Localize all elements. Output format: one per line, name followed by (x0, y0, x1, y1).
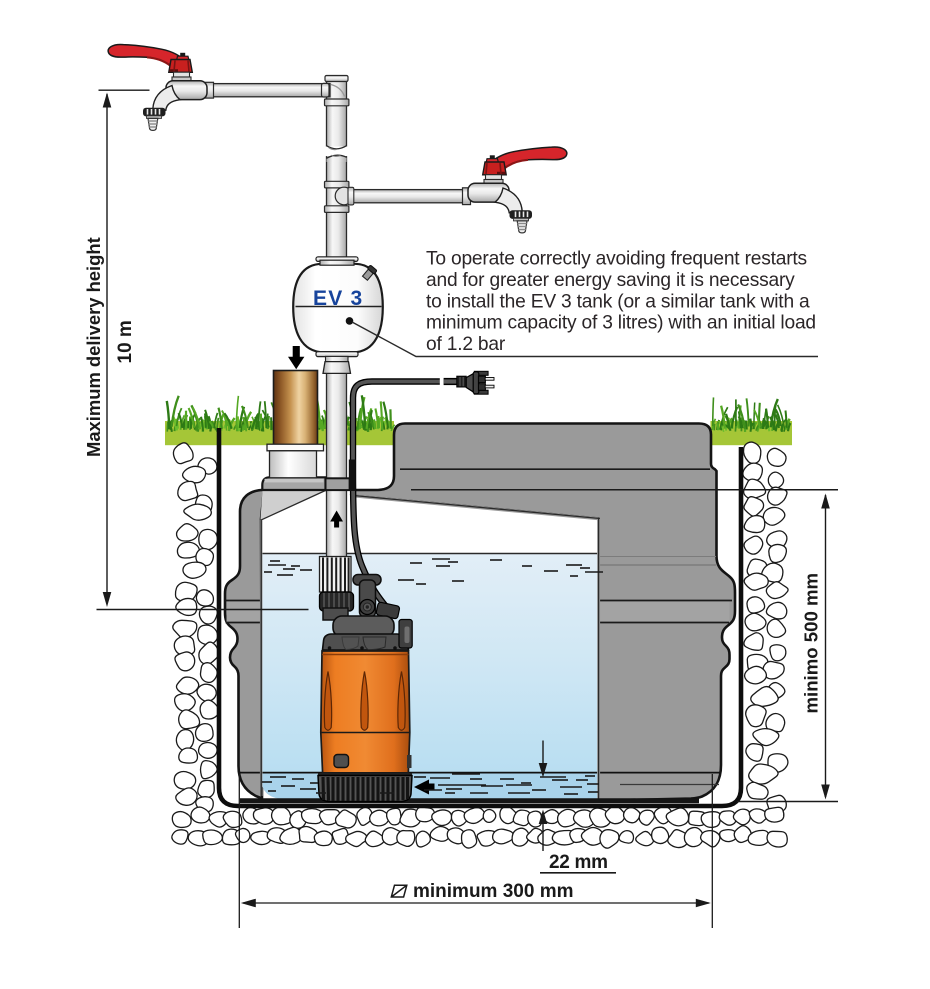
svg-text:minimum capacity of 3 litres): minimum capacity of 3 litres) with an in… (426, 313, 816, 334)
svg-text:To operate correctly avoiding: To operate correctly avoiding frequent r… (426, 249, 807, 270)
svg-text:10 m: 10 m (115, 320, 136, 363)
svg-text:Maximum delivery height: Maximum delivery height (83, 237, 104, 457)
svg-text:to install the EV 3 tank (or a: to install the EV 3 tank (or a similar t… (426, 291, 810, 312)
svg-text:minimum 300 mm: minimum 300 mm (413, 881, 574, 902)
svg-text:and for greater energy saving: and for greater energy saving it is nece… (426, 270, 795, 291)
svg-text:EV 3: EV 3 (313, 287, 363, 310)
svg-text:minimo 500 mm: minimo 500 mm (801, 573, 822, 714)
svg-text:22 mm: 22 mm (549, 852, 608, 873)
svg-text:of 1.2 bar: of 1.2 bar (426, 334, 506, 355)
